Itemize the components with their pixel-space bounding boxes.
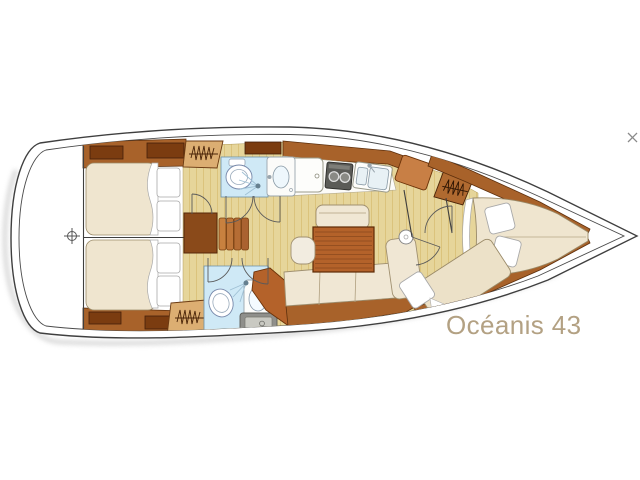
bow-tip-marker-icon (628, 133, 637, 142)
salon-stool (291, 237, 315, 264)
pillow (157, 276, 180, 306)
floorplan-svg (0, 0, 640, 480)
double-sink (352, 161, 392, 192)
burner (340, 172, 350, 182)
pillow (157, 243, 180, 273)
engine-box (184, 213, 217, 253)
yacht-floorplan-figure: Océanis 43 (0, 0, 640, 480)
boat-model-label: Océanis 43 (446, 310, 582, 341)
companionway (184, 213, 249, 253)
locker (147, 143, 184, 158)
faucet (268, 175, 272, 179)
head-port (221, 157, 295, 197)
pillow (157, 168, 180, 197)
locker (90, 146, 123, 159)
wardrobe-port (183, 141, 223, 168)
burner (329, 171, 339, 181)
salon-bench (316, 205, 369, 229)
locker (89, 312, 121, 324)
washbasin (267, 157, 295, 196)
companionway-steps (219, 218, 249, 250)
pillow (157, 201, 180, 231)
locker (245, 142, 281, 154)
stove (325, 162, 353, 190)
salon-table (313, 227, 374, 272)
